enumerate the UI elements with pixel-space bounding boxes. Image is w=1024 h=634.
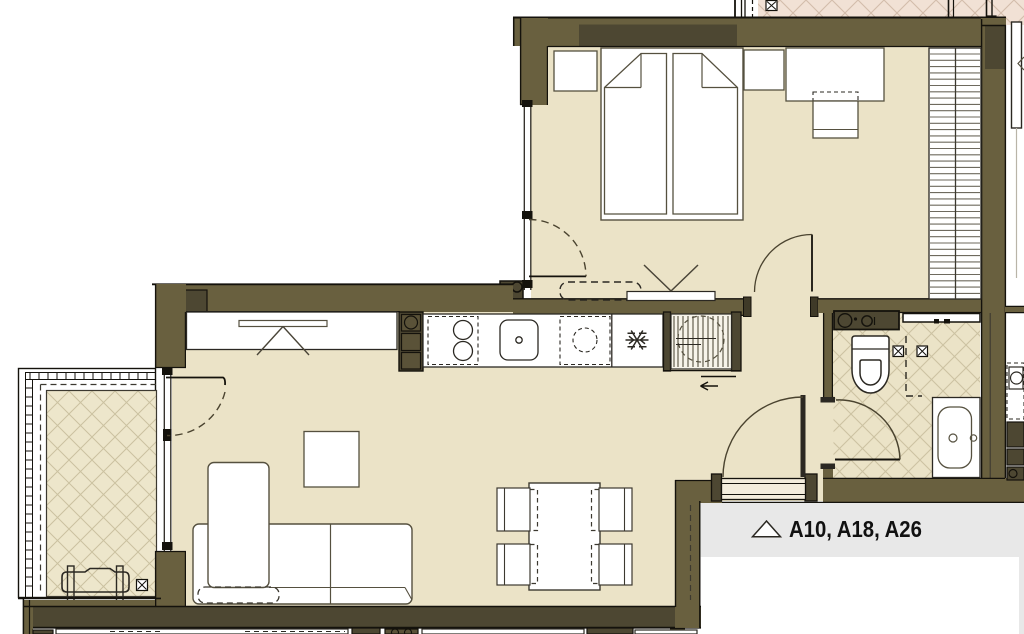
- svg-text:A10, A18, A26: A10, A18, A26: [789, 516, 922, 543]
